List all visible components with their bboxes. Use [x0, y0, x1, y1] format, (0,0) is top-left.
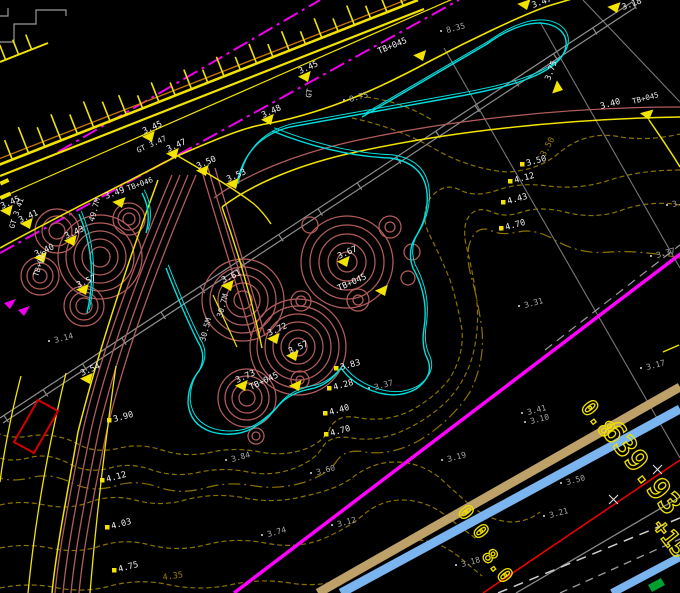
- contour-point-square: [324, 432, 329, 437]
- contour-point-square: [112, 568, 117, 573]
- spot-dot: [455, 564, 457, 566]
- site-plan-drawing: 3.904.124.034.753.834.284.404.703.504.12…: [0, 0, 680, 593]
- spot-dot: [560, 482, 562, 484]
- contour-point-square: [520, 162, 525, 167]
- contour-point-square: [501, 200, 506, 205]
- spot-dot: [343, 99, 345, 101]
- contour-point-square: [327, 386, 332, 391]
- spot-dot: [543, 515, 545, 517]
- spot-dot: [261, 534, 263, 536]
- cad-viewport[interactable]: CAD site plan viewport: [0, 0, 680, 593]
- spot-dot: [441, 459, 443, 461]
- station-sublabel: GT: [304, 88, 314, 99]
- spot-dot: [666, 204, 668, 206]
- spot-dot: [518, 305, 520, 307]
- contour-point-square: [100, 478, 105, 483]
- contour-point-square: [105, 525, 110, 530]
- spot-dot: [310, 472, 312, 474]
- contour-point-square: [499, 226, 504, 231]
- spot-dot: [331, 524, 333, 526]
- spot-dot: [368, 387, 370, 389]
- contour-point-square: [107, 418, 112, 423]
- spot-dot: [650, 255, 652, 257]
- spot-dot: [440, 30, 442, 32]
- contour-point-square: [334, 366, 339, 371]
- spot-dot: [48, 340, 50, 342]
- spot-dot: [225, 459, 227, 461]
- spot-dot: [524, 421, 526, 423]
- spot-dot: [640, 367, 642, 369]
- spot-dot: [521, 412, 523, 414]
- contour-point-square: [323, 411, 328, 416]
- contour-point-square: [508, 179, 513, 184]
